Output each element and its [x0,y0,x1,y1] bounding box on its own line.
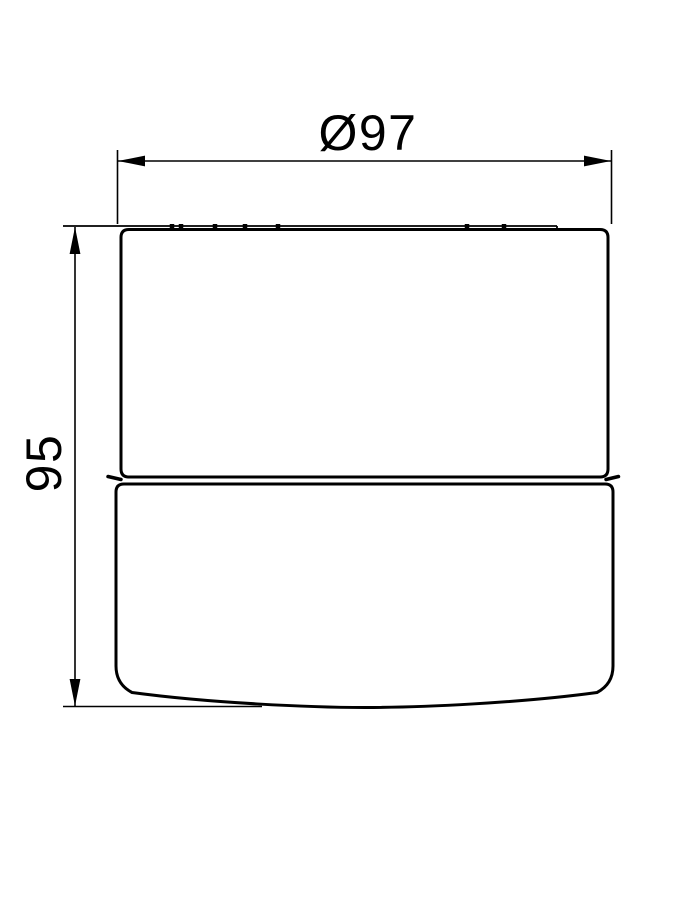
height-dimension-label: 95 [16,434,72,493]
diameter-dimension-label: Ø97 [318,105,417,161]
body-upper-outline [121,230,608,478]
seam-clip-right [606,477,619,480]
drawing-page: Ø97 95 [0,0,686,918]
height-arrow-bottom [70,679,81,706]
diameter-arrow-right [584,156,611,167]
diameter-arrow-left [118,156,145,167]
height-arrow-top [70,227,81,254]
body-lower-outline [116,484,613,708]
technical-drawing-canvas: Ø97 95 [0,0,686,918]
seam-clip-left [108,477,121,480]
